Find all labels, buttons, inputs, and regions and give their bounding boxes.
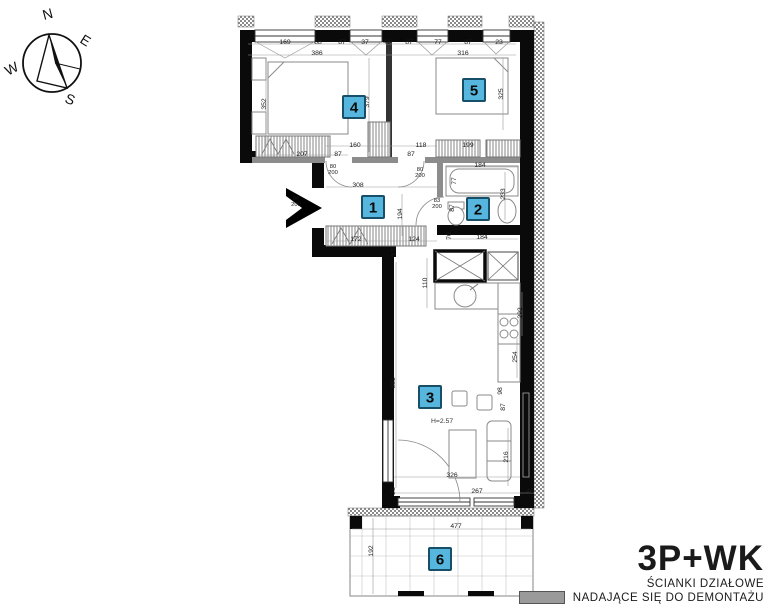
ceiling-height-label: H=2.57 bbox=[431, 418, 453, 425]
room-number-4: 4 bbox=[350, 100, 359, 117]
dimension-label: 80200 bbox=[328, 164, 338, 176]
dimension-label: 37 bbox=[391, 249, 398, 257]
dimension-label: 233 bbox=[500, 188, 507, 200]
dimension-label: 80200 bbox=[415, 167, 425, 179]
entrance-arrow bbox=[286, 188, 322, 228]
dimension-label: 23 bbox=[495, 39, 503, 46]
dimension-label: 881 bbox=[390, 377, 397, 389]
dimension-label: 254 bbox=[512, 351, 519, 363]
wardrobe-room5 bbox=[486, 140, 520, 157]
dimension-label: 124 bbox=[408, 236, 420, 243]
dimension-label: 118 bbox=[416, 142, 427, 149]
wardrobe-divider bbox=[368, 122, 390, 157]
table bbox=[449, 430, 476, 478]
legend-line2: NADAJĄCE SIĘ DO DEMONTAŻU bbox=[573, 592, 764, 604]
chair bbox=[452, 391, 467, 406]
dimension-label: 110 bbox=[422, 277, 429, 288]
dimension-label: 87 bbox=[464, 39, 472, 46]
compass-n: N bbox=[41, 5, 55, 23]
compass-w: W bbox=[2, 58, 22, 79]
bed-room4 bbox=[268, 62, 348, 134]
dimension-label: 88 bbox=[314, 39, 322, 46]
nightstand bbox=[252, 58, 266, 80]
dimension-label: 87 bbox=[407, 151, 415, 158]
partition-wall-swatch bbox=[519, 591, 565, 604]
dimension-label: 70 bbox=[446, 232, 453, 240]
dimension-label: 98 bbox=[497, 387, 504, 395]
dimension-label: 169 bbox=[279, 39, 291, 46]
room-number-2: 2 bbox=[474, 202, 482, 219]
room-number-3: 3 bbox=[426, 390, 434, 407]
dimension-label: 192 bbox=[368, 545, 375, 557]
dimension-label: 77 bbox=[434, 39, 442, 46]
dimension-label: 267 bbox=[471, 488, 483, 495]
sofa bbox=[487, 421, 511, 481]
floor-plan-drawing: N E S W bbox=[0, 0, 770, 612]
dimension-label: 83200 bbox=[432, 198, 442, 210]
compass-rose: N E S W bbox=[2, 5, 94, 108]
legend: 3P+WK ŚCIANKI DZIAŁOWE NADAJĄCE SIĘ DO D… bbox=[519, 541, 764, 604]
room-number-6: 6 bbox=[436, 552, 444, 569]
compass-s: S bbox=[63, 90, 78, 108]
dimension-label: 207 bbox=[296, 151, 308, 158]
compass-e: E bbox=[77, 31, 93, 50]
nightstand bbox=[252, 112, 266, 134]
dimension-label: 326 bbox=[446, 472, 458, 479]
dimension-label: 77 bbox=[451, 177, 458, 185]
dimension-label: 477 bbox=[450, 523, 462, 530]
room-number-1: 1 bbox=[369, 200, 377, 217]
dimension-label: 184 bbox=[476, 234, 488, 241]
annotation-labels: H=2.57 bbox=[431, 418, 453, 425]
dimension-label: 160 bbox=[349, 142, 361, 149]
dimension-label: 184 bbox=[474, 162, 486, 169]
washbasin bbox=[498, 199, 516, 223]
dimension-label: 87 bbox=[449, 204, 456, 212]
dimension-label: 194 bbox=[397, 208, 404, 220]
kitchen-counter bbox=[435, 283, 501, 309]
floor-plan-page: N E S W bbox=[0, 0, 770, 612]
dimension-label: 87 bbox=[500, 403, 507, 411]
dimension-label: 46 bbox=[526, 488, 534, 495]
room-number-5: 5 bbox=[470, 83, 478, 100]
dimension-label: 216 bbox=[503, 451, 510, 463]
dimension-label: 87 bbox=[338, 39, 346, 46]
dimension-label: 316 bbox=[457, 50, 469, 57]
dimension-label: 199 bbox=[462, 142, 474, 149]
dimension-label: 308 bbox=[352, 182, 364, 189]
plan-type-label: 3P+WK bbox=[519, 541, 764, 576]
dimension-label: 37 bbox=[361, 39, 369, 46]
dimension-label: 87 bbox=[334, 151, 342, 158]
dimension-label: 43 bbox=[383, 39, 391, 46]
chair bbox=[477, 395, 492, 410]
dimension-label: 352 bbox=[261, 98, 268, 110]
dimension-label: 172 bbox=[350, 236, 362, 243]
dimension-label: 21 bbox=[390, 487, 397, 495]
legend-line1: ŚCIANKI DZIAŁOWE bbox=[519, 578, 764, 590]
dimension-label: 325 bbox=[498, 88, 505, 100]
dimension-label: 87 bbox=[405, 39, 413, 46]
dimension-label: 386 bbox=[311, 50, 323, 57]
wardrobe-room4 bbox=[256, 136, 330, 157]
dimension-label: 292 bbox=[517, 307, 524, 319]
